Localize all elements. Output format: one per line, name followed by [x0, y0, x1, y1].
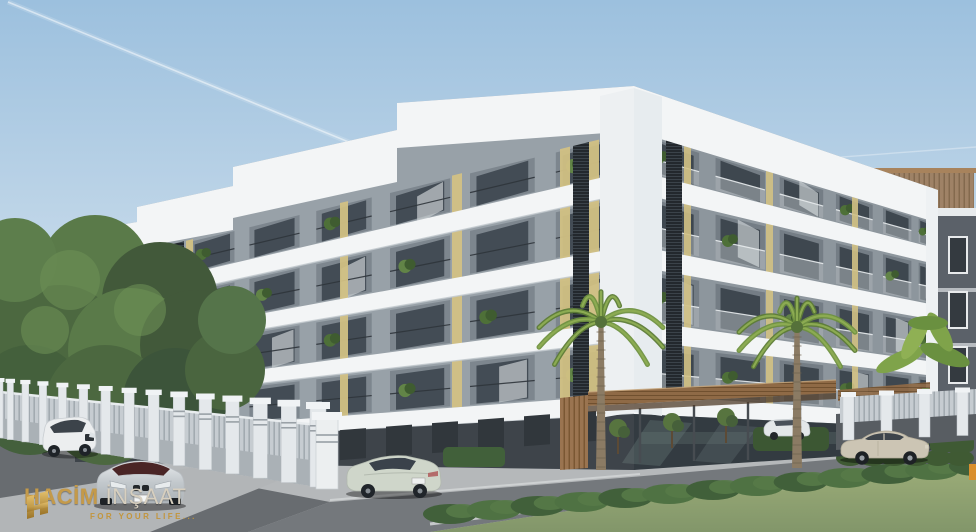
brand-suffix: İNŞAAT	[106, 486, 187, 508]
brand-tagline: FOR YOUR LIFE...	[90, 512, 197, 521]
company-logo: HACİM İNŞAAT FOR YOUR LIFE...	[24, 486, 197, 521]
architectural-rendering: HACİM İNŞAAT FOR YOUR LIFE...	[0, 0, 976, 532]
gold-brick-monogram-icon	[24, 488, 51, 520]
rendering-scene	[0, 0, 976, 532]
